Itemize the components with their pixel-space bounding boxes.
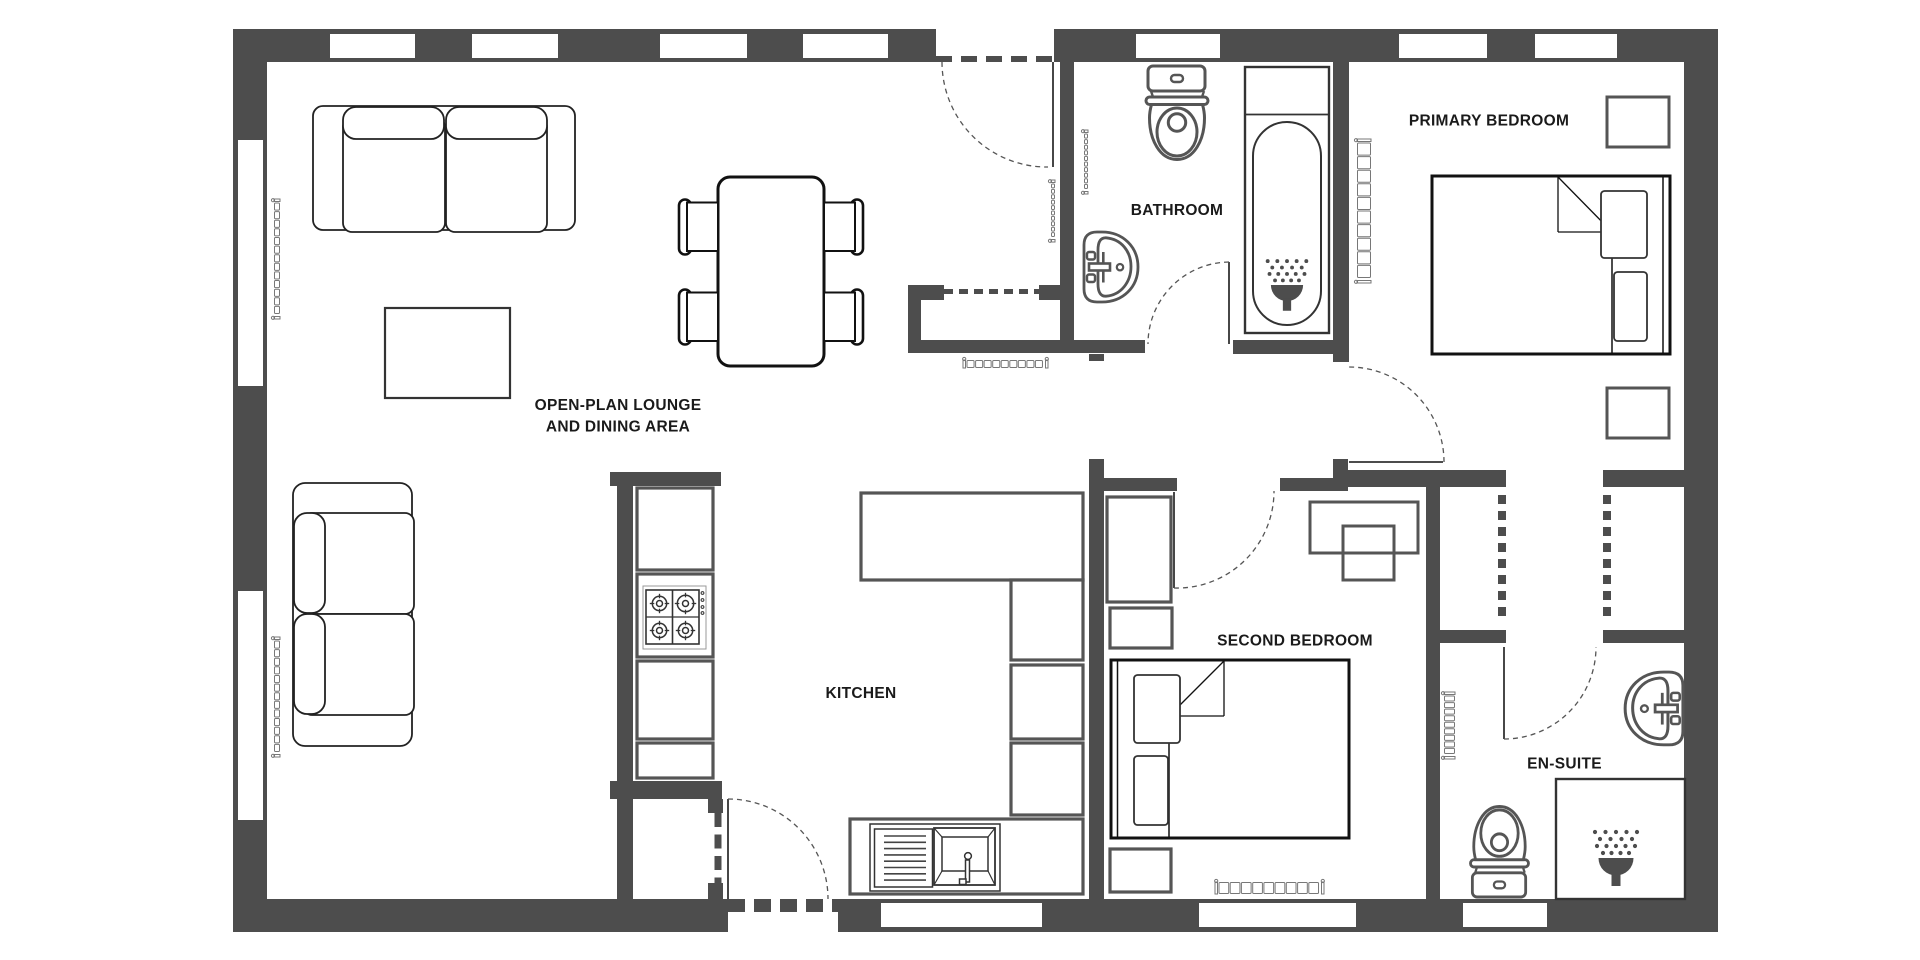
svg-text:EN-SUITE: EN-SUITE: [1527, 756, 1602, 773]
svg-text:AND DINING AREA: AND DINING AREA: [546, 419, 690, 436]
svg-text:SECOND BEDROOM: SECOND BEDROOM: [1217, 633, 1373, 650]
svg-text:BATHROOM: BATHROOM: [1131, 202, 1224, 219]
svg-text:PRIMARY BEDROOM: PRIMARY BEDROOM: [1409, 113, 1569, 130]
svg-text:OPEN-PLAN LOUNGE: OPEN-PLAN LOUNGE: [535, 397, 702, 414]
svg-text:KITCHEN: KITCHEN: [826, 685, 897, 702]
